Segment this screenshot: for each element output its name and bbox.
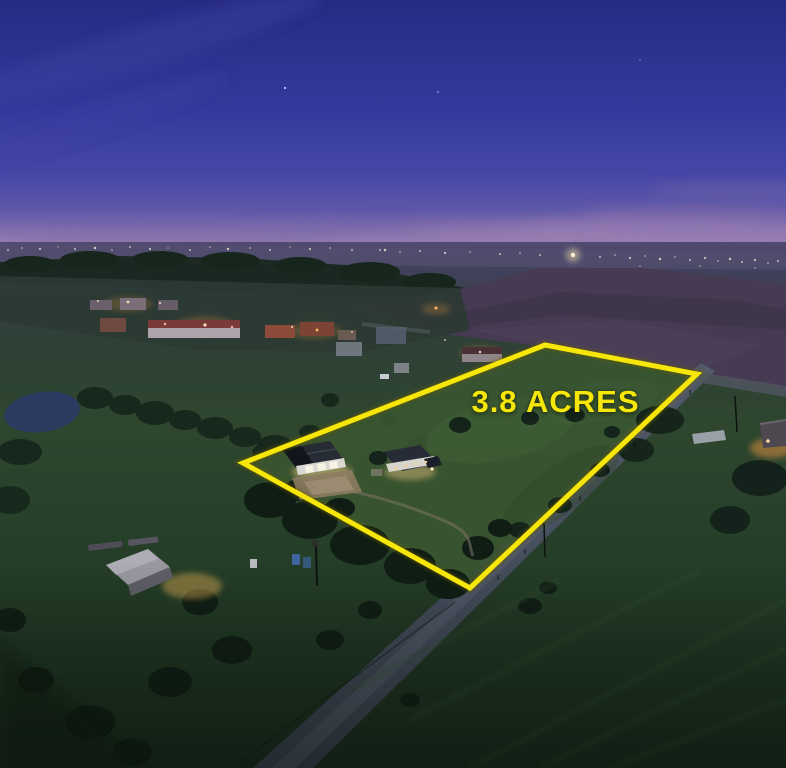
front-tree <box>369 451 387 465</box>
vignette <box>0 560 786 768</box>
acreage-label: 3.8 ACRES <box>448 384 663 420</box>
deck <box>371 469 382 476</box>
aerial-property-photo: 3.8 ACRES <box>0 0 786 768</box>
twilight-sky <box>0 0 786 248</box>
landscape-scene <box>0 0 786 768</box>
utility-pole <box>544 523 545 557</box>
bright-farm-light <box>566 248 580 262</box>
